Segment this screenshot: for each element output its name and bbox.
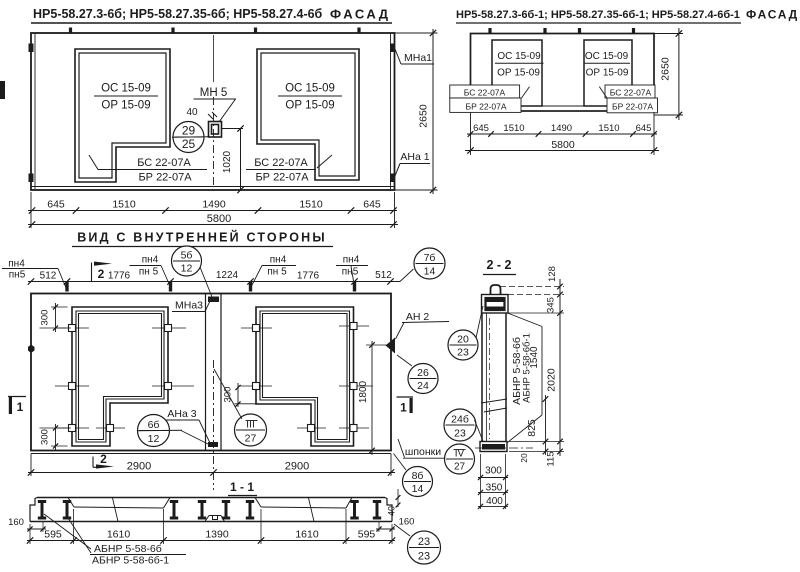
svg-text:2650: 2650 bbox=[660, 57, 672, 81]
svg-text:АНа 3: АНа 3 bbox=[167, 408, 196, 420]
svg-text:160: 160 bbox=[399, 517, 415, 528]
svg-text:ФАСАД: ФАСАД bbox=[746, 8, 799, 22]
svg-text:14: 14 bbox=[412, 483, 424, 495]
svg-text:пн5: пн5 bbox=[342, 267, 359, 278]
svg-text:АНа 1: АНа 1 bbox=[400, 151, 429, 163]
svg-text:ОР 15-09: ОР 15-09 bbox=[285, 100, 334, 112]
svg-text:645: 645 bbox=[636, 123, 652, 134]
svg-text:400: 400 bbox=[486, 496, 503, 507]
svg-text:БС 22-07А: БС 22-07А bbox=[464, 87, 506, 97]
svg-text:2650: 2650 bbox=[418, 104, 430, 128]
svg-text:350: 350 bbox=[486, 483, 503, 494]
svg-text:2020: 2020 bbox=[546, 368, 558, 392]
svg-text:БР 22-07А: БР 22-07А bbox=[138, 172, 192, 184]
svg-text:ОС 15-09: ОС 15-09 bbox=[101, 83, 151, 95]
svg-text:1776: 1776 bbox=[108, 271, 131, 282]
svg-text:ВИД С ВНУТРЕННЕЙ СТОРОНЫ: ВИД С ВНУТРЕННЕЙ СТОРОНЫ bbox=[77, 230, 327, 245]
svg-text:1: 1 bbox=[400, 401, 407, 415]
svg-text:IV: IV bbox=[455, 449, 465, 460]
svg-text:НР5-58.27.3-6б; НР5-58.27.35-6: НР5-58.27.3-6б; НР5-58.27.35-6б; НР5-58.… bbox=[33, 7, 323, 21]
svg-text:12: 12 bbox=[181, 263, 193, 275]
svg-text:20: 20 bbox=[457, 334, 469, 346]
svg-text:512: 512 bbox=[375, 270, 392, 281]
svg-text:АБНР 5-58-6б: АБНР 5-58-6б bbox=[94, 543, 162, 555]
svg-text:2900: 2900 bbox=[127, 461, 151, 473]
svg-text:595: 595 bbox=[44, 529, 62, 541]
svg-text:1 - 1: 1 - 1 bbox=[230, 480, 254, 494]
svg-text:1800: 1800 bbox=[358, 380, 369, 403]
svg-text:595: 595 bbox=[358, 529, 376, 541]
svg-text:2: 2 bbox=[100, 452, 107, 466]
svg-text:1510: 1510 bbox=[503, 123, 524, 134]
svg-text:345: 345 bbox=[546, 297, 557, 313]
svg-text:25: 25 bbox=[182, 137, 196, 151]
svg-text:5800: 5800 bbox=[551, 139, 575, 151]
svg-text:5800: 5800 bbox=[207, 213, 231, 225]
svg-text:пн5: пн5 bbox=[9, 270, 26, 281]
svg-text:29: 29 bbox=[182, 124, 196, 138]
svg-text:14: 14 bbox=[424, 266, 436, 278]
svg-text:300: 300 bbox=[40, 429, 51, 445]
svg-text:1610: 1610 bbox=[295, 529, 319, 541]
svg-text:8б: 8б bbox=[412, 470, 424, 482]
svg-text:1: 1 bbox=[17, 400, 24, 414]
svg-text:1390: 1390 bbox=[205, 529, 229, 541]
svg-text:шпонки: шпонки bbox=[405, 446, 441, 458]
svg-text:40: 40 bbox=[186, 107, 198, 118]
svg-text:27: 27 bbox=[245, 433, 257, 445]
svg-text:6б: 6б bbox=[148, 419, 160, 431]
svg-text:БС 22-07А: БС 22-07А bbox=[137, 157, 191, 169]
svg-text:пн 5: пн 5 bbox=[267, 267, 287, 278]
svg-text:160: 160 bbox=[8, 517, 24, 528]
svg-text:7б: 7б bbox=[424, 252, 436, 264]
svg-text:пн 5: пн 5 bbox=[139, 267, 159, 278]
svg-text:ОР 15-09: ОР 15-09 bbox=[497, 68, 540, 79]
svg-text:40: 40 bbox=[387, 506, 397, 516]
svg-text:20: 20 bbox=[519, 453, 529, 463]
svg-text:БР 22-07А: БР 22-07А bbox=[465, 101, 506, 111]
svg-text:1510: 1510 bbox=[598, 123, 619, 134]
svg-text:24: 24 bbox=[417, 380, 429, 392]
svg-text:ОС 15-09: ОС 15-09 bbox=[585, 51, 629, 62]
svg-text:пн4: пн4 bbox=[343, 255, 360, 266]
svg-text:2: 2 bbox=[98, 267, 105, 281]
svg-text:645: 645 bbox=[473, 123, 489, 134]
svg-text:пн4: пн4 bbox=[270, 255, 287, 266]
svg-text:ОС 15-09: ОС 15-09 bbox=[497, 51, 541, 62]
svg-text:1490: 1490 bbox=[202, 199, 226, 211]
svg-text:1510: 1510 bbox=[112, 199, 136, 211]
svg-text:128: 128 bbox=[547, 266, 558, 282]
svg-text:24б: 24б bbox=[451, 414, 469, 426]
svg-text:23: 23 bbox=[418, 536, 430, 548]
svg-text:512: 512 bbox=[40, 271, 57, 282]
svg-text:27: 27 bbox=[454, 462, 466, 473]
svg-text:645: 645 bbox=[47, 199, 65, 211]
svg-text:1490: 1490 bbox=[551, 123, 572, 134]
svg-text:1610: 1610 bbox=[107, 529, 131, 541]
svg-text:АН 2: АН 2 bbox=[406, 311, 430, 323]
svg-text:БС 22-07А: БС 22-07А bbox=[610, 87, 652, 97]
svg-text:ФАСАД: ФАСАД bbox=[330, 7, 391, 22]
svg-text:2 - 2: 2 - 2 bbox=[486, 258, 511, 272]
svg-text:1510: 1510 bbox=[299, 199, 323, 211]
svg-text:1776: 1776 bbox=[297, 271, 320, 282]
svg-text:300: 300 bbox=[40, 310, 51, 326]
svg-text:26: 26 bbox=[417, 367, 429, 379]
svg-text:1540: 1540 bbox=[529, 346, 540, 369]
svg-text:23: 23 bbox=[457, 347, 469, 359]
svg-text:БР 22-07А: БР 22-07А bbox=[255, 172, 309, 184]
svg-text:23: 23 bbox=[454, 428, 466, 440]
svg-text:ОР 15-09: ОР 15-09 bbox=[586, 68, 629, 79]
svg-text:пн4: пн4 bbox=[8, 259, 25, 270]
svg-text:МНа3: МНа3 bbox=[175, 300, 203, 312]
svg-text:АБНР 5-58-6б-1: АБНР 5-58-6б-1 bbox=[92, 555, 169, 567]
svg-text:БС 22-07А: БС 22-07А bbox=[254, 157, 308, 169]
svg-text:12: 12 bbox=[148, 433, 160, 445]
svg-text:115: 115 bbox=[546, 451, 557, 466]
svg-text:23: 23 bbox=[418, 551, 430, 563]
svg-text:645: 645 bbox=[363, 199, 381, 211]
svg-text:БР 22-07А: БР 22-07А bbox=[612, 101, 653, 111]
svg-text:ОР 15-09: ОР 15-09 bbox=[101, 100, 150, 112]
svg-text:пн4: пн4 bbox=[142, 255, 159, 266]
svg-text:ОС 15-09: ОС 15-09 bbox=[285, 83, 335, 95]
svg-text:1224: 1224 bbox=[216, 270, 239, 281]
svg-text:825: 825 bbox=[526, 419, 538, 437]
svg-text:МНа1: МНа1 bbox=[404, 52, 432, 64]
svg-text:300: 300 bbox=[485, 466, 502, 477]
svg-text:2900: 2900 bbox=[285, 461, 309, 473]
svg-text:НР5-58.27.3-6б-1; НР5-58.27.35: НР5-58.27.3-6б-1; НР5-58.27.35-6б-1; НР5… bbox=[456, 9, 740, 21]
svg-text:1020: 1020 bbox=[222, 150, 233, 173]
svg-text:5б: 5б bbox=[181, 250, 193, 262]
